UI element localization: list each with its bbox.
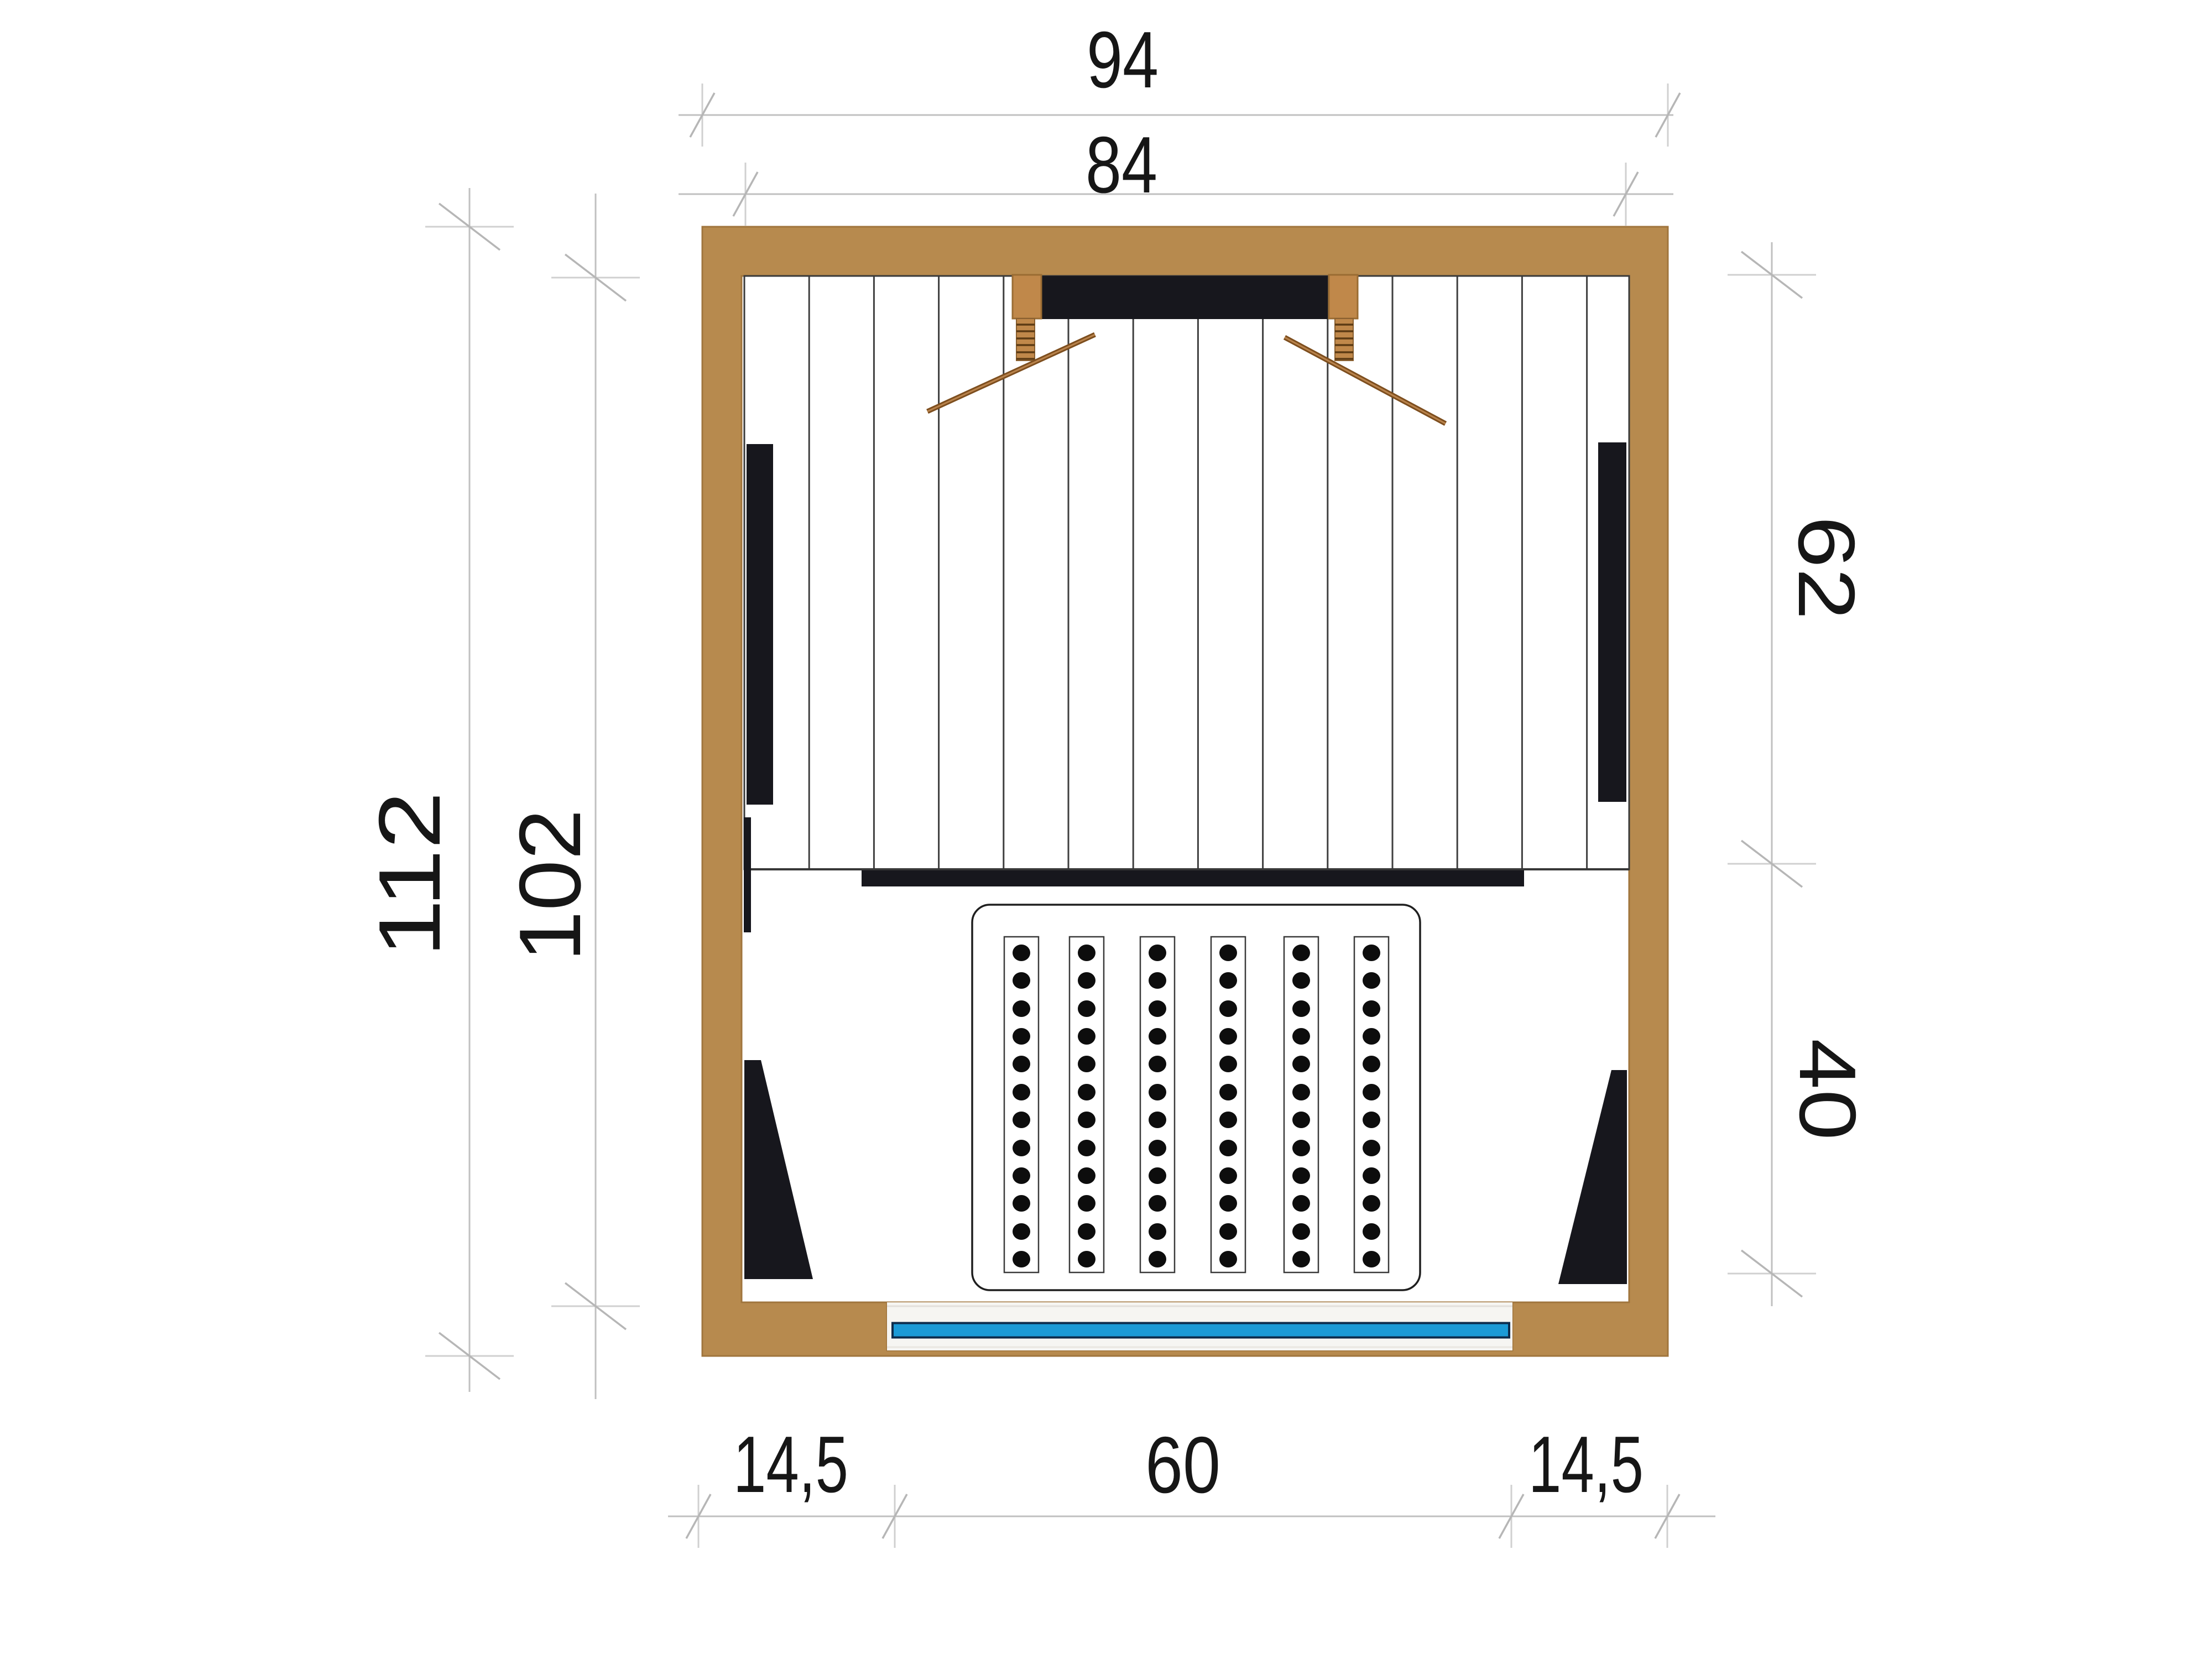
svg-text:84: 84 [1086, 120, 1157, 210]
svg-text:112: 112 [361, 791, 458, 957]
svg-text:102: 102 [502, 809, 599, 962]
svg-text:14,5: 14,5 [1528, 1420, 1644, 1509]
svg-text:40: 40 [1783, 1039, 1872, 1140]
svg-text:14,5: 14,5 [733, 1420, 848, 1509]
svg-text:60: 60 [1145, 1420, 1220, 1510]
svg-text:62: 62 [1782, 516, 1871, 620]
svg-text:94: 94 [1087, 15, 1159, 105]
